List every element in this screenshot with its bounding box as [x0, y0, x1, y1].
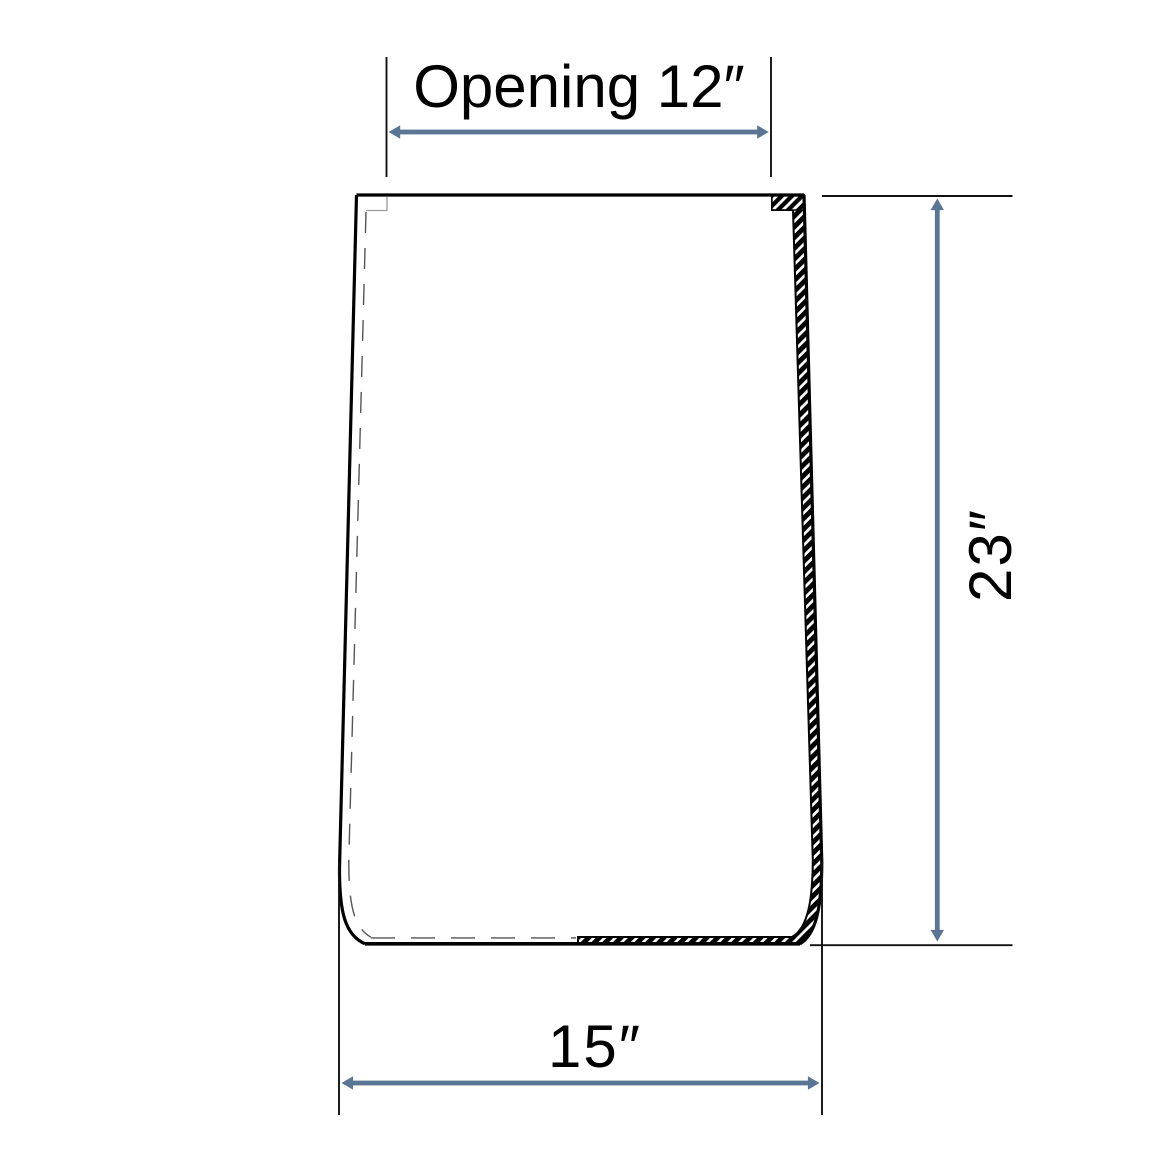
svg-text:15″: 15″ — [548, 1013, 642, 1080]
svg-text:Opening 12″: Opening 12″ — [413, 53, 745, 120]
svg-text:23″: 23″ — [957, 508, 1024, 602]
